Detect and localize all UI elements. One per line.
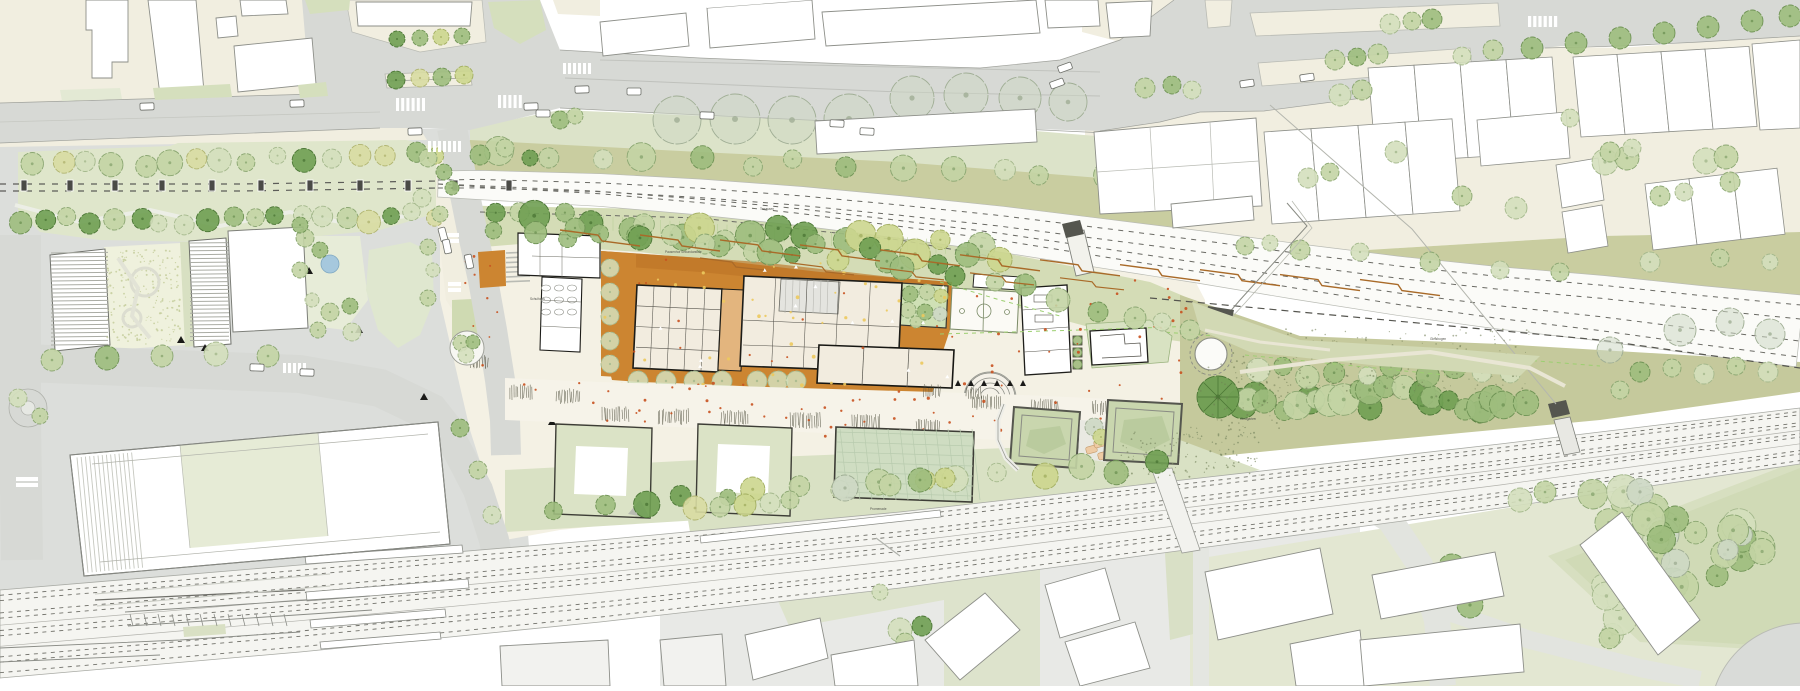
svg-text:Promenade: Promenade (870, 507, 887, 511)
svg-text:Terrassen: Terrassen (760, 207, 774, 211)
svg-text:Obstgarten: Obstgarten (1240, 417, 1256, 421)
svg-text:Gleisbogen: Gleisbogen (1430, 337, 1446, 341)
svg-text:Pausenhof Sekundarstufe: Pausenhof Sekundarstufe (665, 250, 702, 254)
svg-text:Schulhaus: Schulhaus (530, 297, 545, 301)
